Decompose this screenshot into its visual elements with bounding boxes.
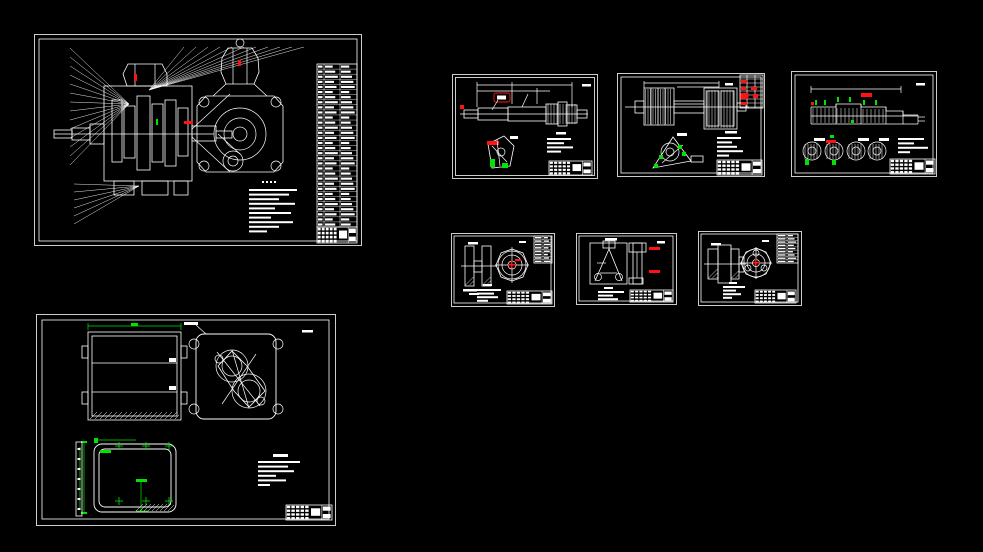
linework-output-shaft-drawing <box>791 71 937 177</box>
sheet-gear-part-drawing-1[interactable] <box>451 233 555 307</box>
linework-gear-part-drawing-2 <box>698 231 802 306</box>
sheet-output-shaft-drawing[interactable] <box>791 71 937 177</box>
sheet-input-shaft-drawing[interactable] <box>452 74 598 179</box>
cad-workspace[interactable] <box>0 0 983 552</box>
sheet-gearbox-assembly-drawing[interactable] <box>34 34 362 246</box>
linework-gearbox-assembly-drawing <box>34 34 362 246</box>
sheet-gear-part-drawing-2[interactable] <box>698 231 802 306</box>
linework-gear-part-drawing-1 <box>451 233 555 307</box>
linework-input-shaft-drawing <box>452 74 598 179</box>
linework-housing-part-drawing <box>36 314 336 526</box>
linework-intermediate-shaft-drawing <box>617 73 765 177</box>
sheet-housing-part-drawing[interactable] <box>36 314 336 526</box>
sheet-intermediate-shaft-drawing[interactable] <box>617 73 765 177</box>
sheet-shift-fork-drawing[interactable] <box>576 233 677 305</box>
linework-shift-fork-drawing <box>576 233 677 305</box>
